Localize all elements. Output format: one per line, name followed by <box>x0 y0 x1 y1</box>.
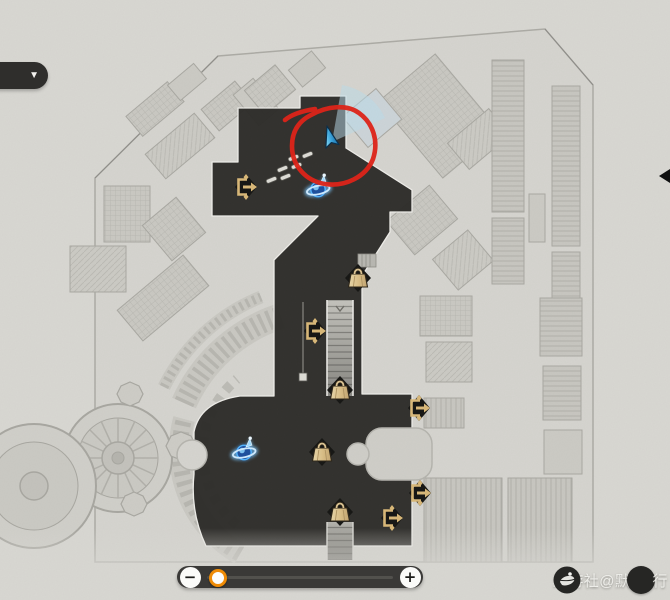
zoom-slider-knob[interactable] <box>209 569 227 587</box>
noise-texture <box>0 0 670 600</box>
map-collapse-button[interactable]: ▼ <box>0 62 48 89</box>
zoom-slider[interactable]: − + <box>177 566 423 588</box>
map-canvas[interactable] <box>0 0 670 600</box>
game-map-screen: ▼ − + 米游社@默 行 <box>0 0 670 600</box>
watermark: 米游社@默 行 <box>553 566 668 594</box>
watermark-text-suffix: 行 <box>652 570 668 591</box>
chevron-down-icon: ▼ <box>29 71 39 81</box>
zoom-slider-track[interactable] <box>207 576 393 579</box>
zoom-out-button[interactable]: − <box>180 567 201 588</box>
zoom-in-button[interactable]: + <box>400 567 421 588</box>
